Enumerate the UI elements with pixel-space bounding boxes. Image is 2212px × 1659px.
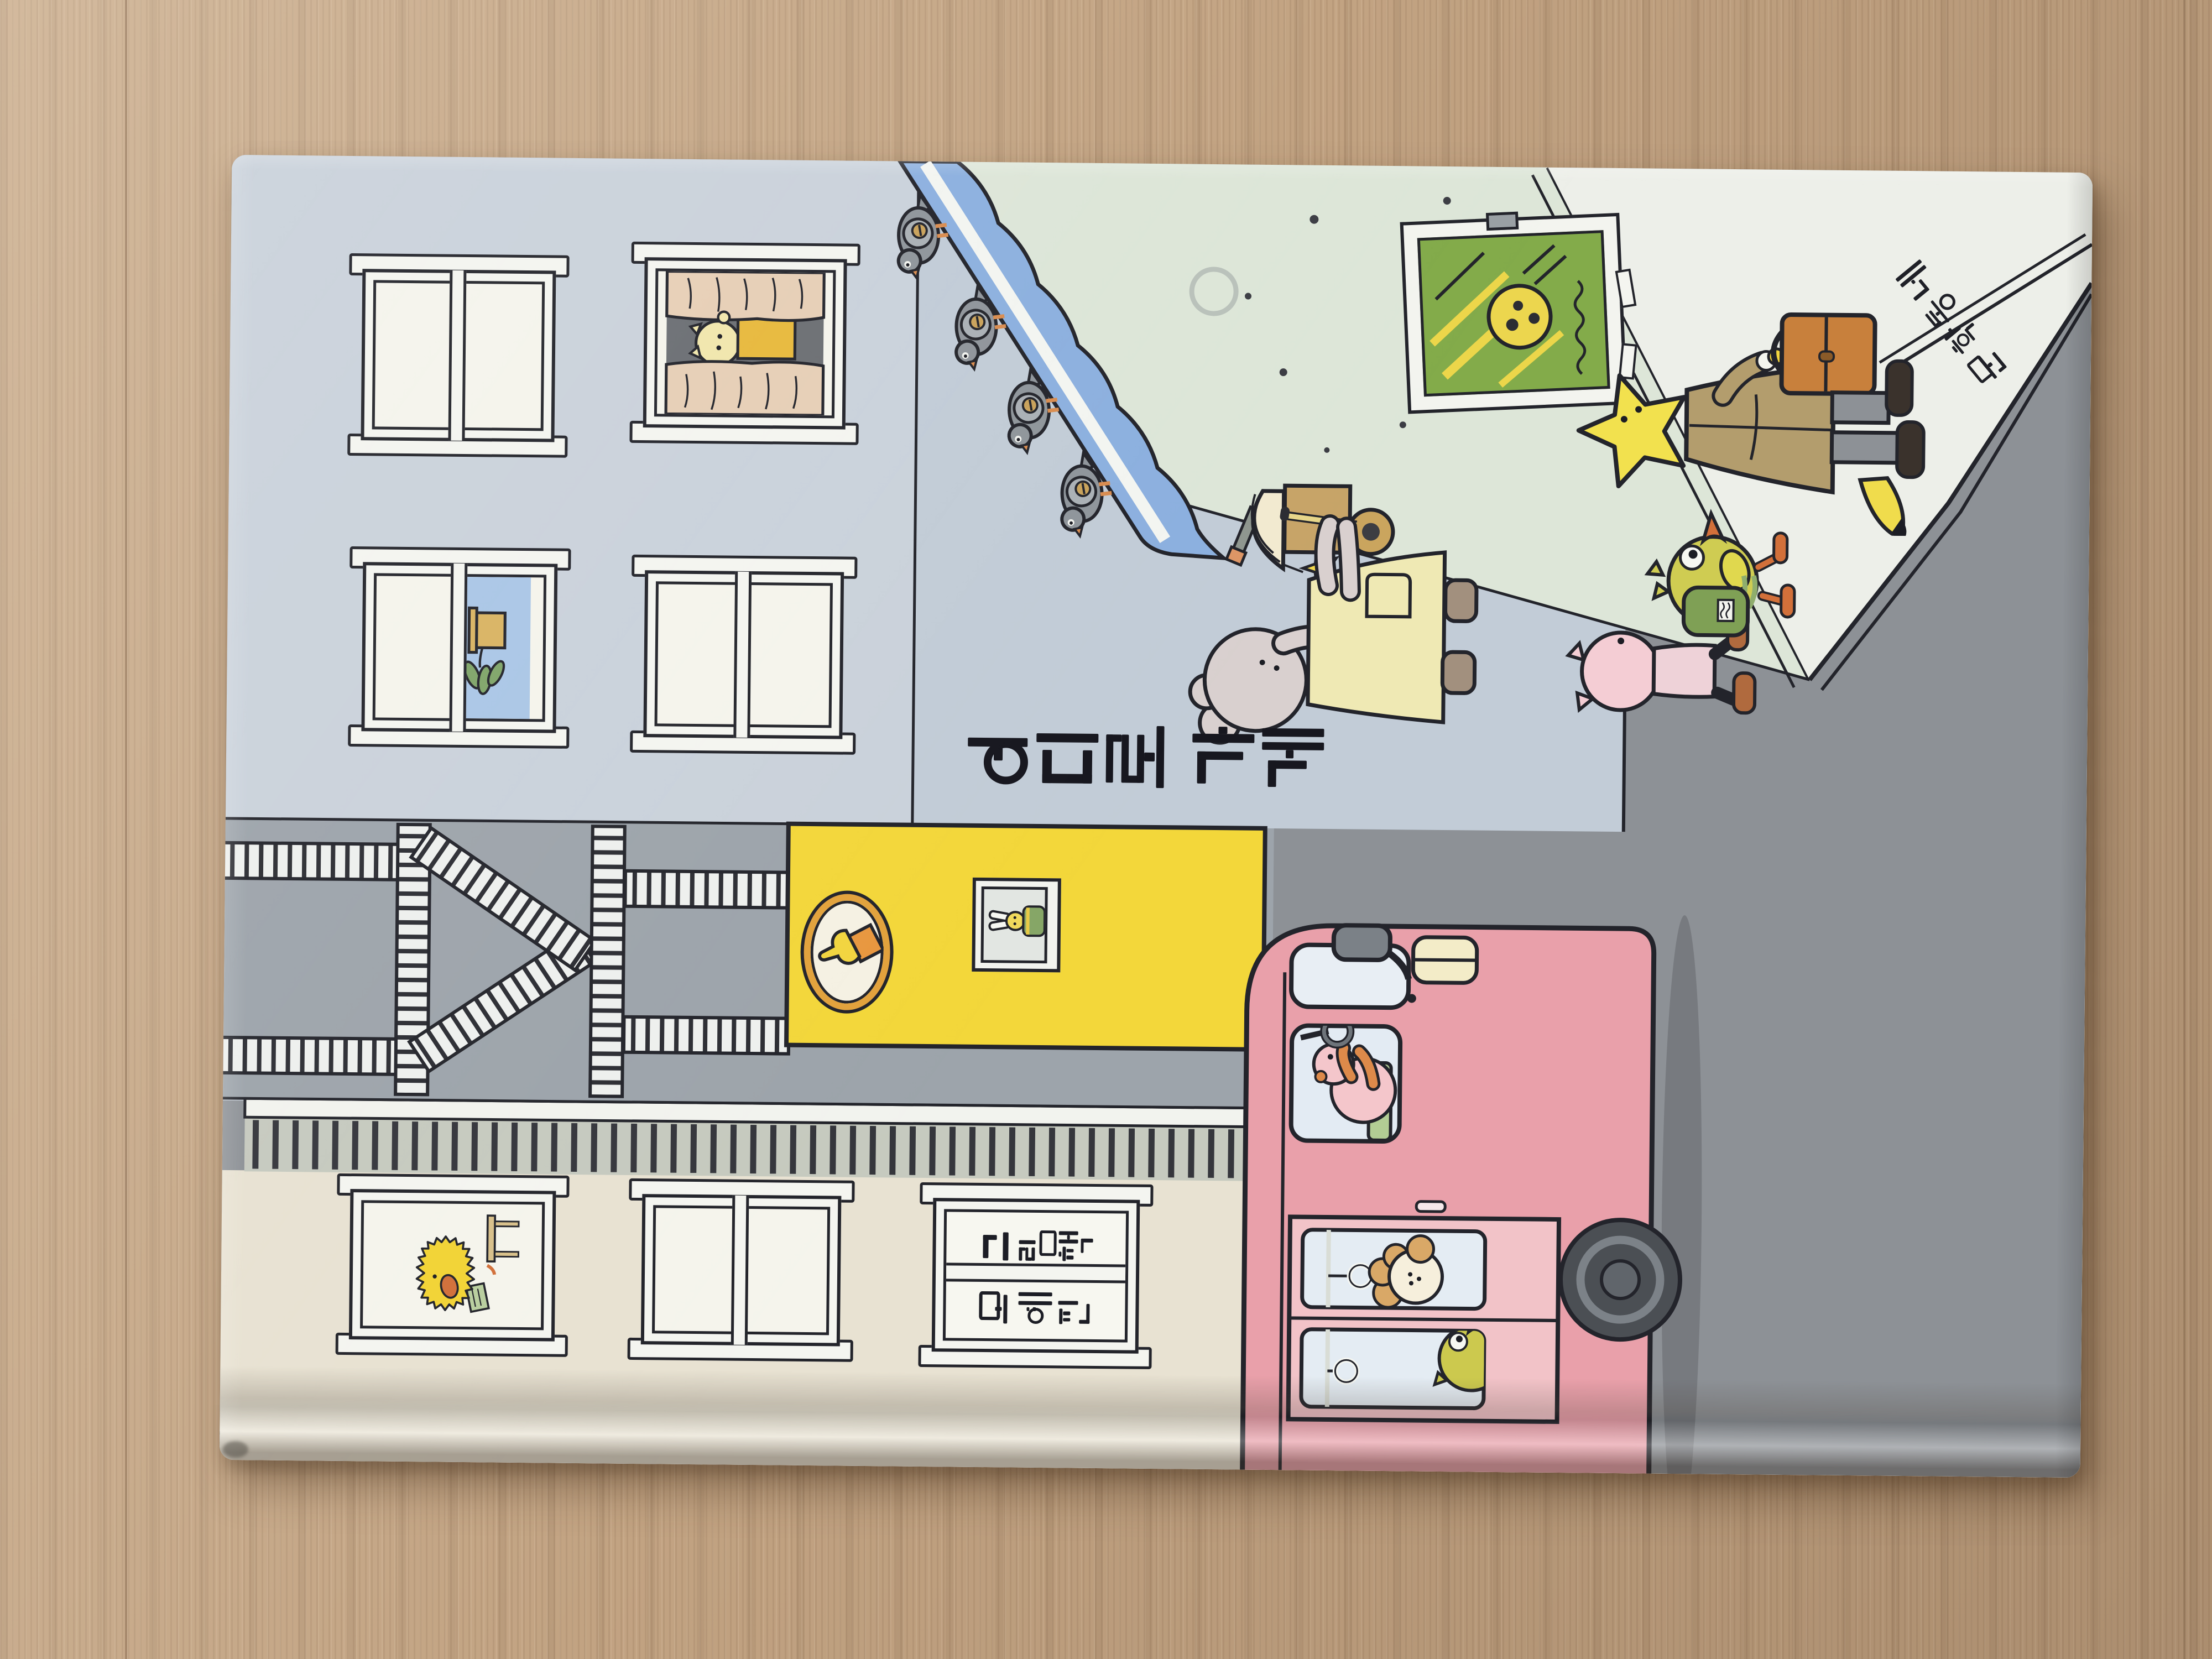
window-empty-cream xyxy=(641,1183,842,1357)
star-head xyxy=(1578,375,1684,487)
boot xyxy=(1445,580,1477,622)
boot xyxy=(1442,652,1475,693)
poster-tab xyxy=(1486,212,1519,231)
trouser-leg xyxy=(1832,432,1900,463)
corner-scuff xyxy=(223,1441,248,1458)
window-curtain-cat xyxy=(643,246,847,440)
bus-wheel xyxy=(1560,1219,1681,1340)
shoe xyxy=(1734,673,1755,713)
pointing-hand-icon xyxy=(810,900,884,1004)
backpack xyxy=(1683,587,1748,635)
cat-hand xyxy=(718,312,730,324)
cat-peeking-curtains xyxy=(657,271,833,415)
shop-doorway xyxy=(972,878,1061,973)
window-plain-mid xyxy=(643,559,844,750)
book-title: 어디로 가게 xyxy=(962,721,1328,794)
chick-reading-on-stool xyxy=(363,1203,542,1327)
cover-art-upright: 모예진 그림책 xyxy=(220,155,2093,1478)
shop-oval-sign xyxy=(804,894,891,1010)
driver-window xyxy=(1291,1018,1400,1141)
window-plain-top xyxy=(361,258,556,453)
webbed-foot xyxy=(1773,533,1787,563)
shoe xyxy=(1886,361,1912,415)
elephant xyxy=(1190,524,1477,745)
photo-of-book-on-table: 모예진 그림책 xyxy=(0,0,2212,1659)
headlight xyxy=(1413,937,1477,983)
window-chick xyxy=(349,1178,556,1353)
wood-plank-seam xyxy=(125,0,127,1659)
backpack-tag xyxy=(1718,600,1733,621)
door-handle xyxy=(1416,1202,1445,1212)
book-front-cover: 모예진 그림책 xyxy=(220,155,2093,1478)
trouser-leg xyxy=(1832,393,1889,423)
pink-bus xyxy=(1220,867,1724,1478)
rabbit-in-doorway xyxy=(983,889,1045,961)
window-plant xyxy=(361,551,557,744)
credits-author: 모예진 xyxy=(946,1275,1125,1339)
side-mirror xyxy=(1334,925,1391,960)
elephant-with-pram xyxy=(1183,479,1517,759)
wood-plank-seam xyxy=(2183,0,2185,1659)
window-credits: 모예진 그림책 xyxy=(931,1187,1140,1365)
book: 모예진 그림책 xyxy=(220,155,2093,1478)
star-head-commuter xyxy=(1567,267,1957,536)
webbed-foot xyxy=(1781,585,1795,617)
bus-door xyxy=(1288,1200,1559,1422)
shoe xyxy=(1897,422,1924,477)
